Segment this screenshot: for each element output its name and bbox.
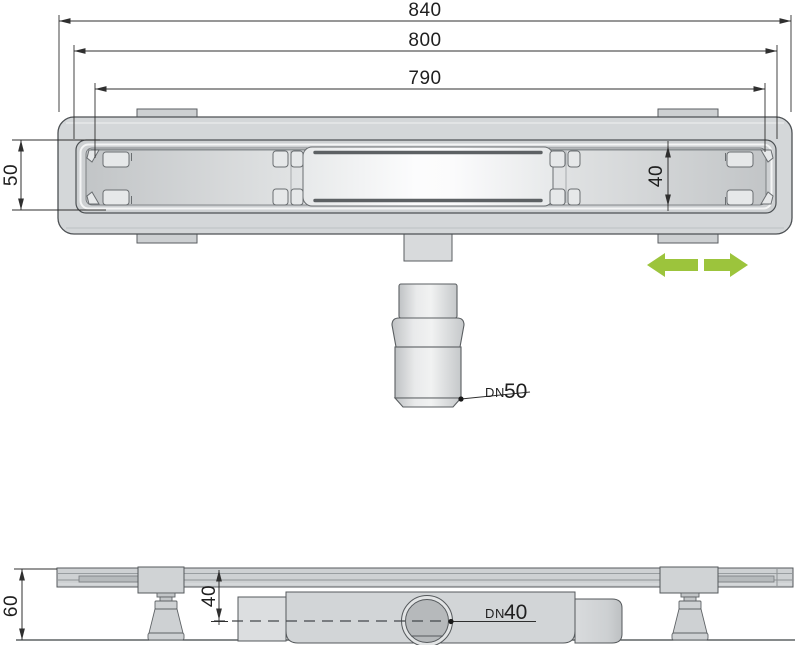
adjustable-foot-left: [148, 593, 184, 640]
dn50-size: 50: [504, 380, 527, 403]
side-view: DN 40 60 40: [1, 567, 795, 645]
trap-inlet: [238, 597, 286, 641]
dim-790-label: 790: [408, 68, 441, 89]
drain-pipe: [392, 284, 464, 407]
clip: [568, 189, 580, 205]
dn40-size: 40: [504, 601, 527, 624]
technical-drawing-page: 840 800 790 50 40: [0, 0, 800, 645]
trap-outlet-stub: [575, 599, 622, 643]
dn40-prefix: DN: [485, 606, 505, 621]
pipe-upper-tube: [399, 284, 457, 318]
outlet-circle: [402, 596, 453, 645]
clip: [291, 151, 303, 167]
top-view: 840 800 790 50 40: [1, 0, 792, 407]
clip: [550, 151, 565, 167]
pipe-chamfer: [395, 398, 461, 407]
clip: [103, 152, 129, 167]
clip: [103, 190, 129, 205]
dim-60-label: 60: [1, 595, 22, 617]
mounting-bracket: [660, 567, 718, 593]
cover-plate: [303, 147, 553, 206]
clip: [550, 189, 565, 205]
rail-slot: [79, 576, 141, 582]
leader-dot: [458, 396, 463, 401]
dn50-prefix: DN: [485, 385, 505, 400]
clip: [291, 189, 303, 205]
clip: [273, 151, 288, 167]
pipe-collar: [392, 318, 464, 347]
leader-dot: [448, 619, 453, 624]
clip: [727, 152, 753, 167]
clip: [568, 151, 580, 167]
dim-800-label: 800: [408, 30, 441, 51]
linear-drain-technical-drawing: 840 800 790 50 40: [0, 0, 800, 645]
direction-arrow-left-icon: [647, 253, 698, 277]
clip: [727, 190, 753, 205]
direction-arrow-right-icon: [704, 253, 748, 277]
dim-840: 840: [59, 0, 791, 112]
mounting-bracket: [138, 567, 184, 593]
pipe-body: [395, 347, 461, 398]
dim-40-side-label: 40: [199, 585, 220, 607]
rail-slot: [716, 576, 774, 582]
dn50-callout: DN 50: [458, 380, 530, 403]
dim-40-label: 40: [646, 165, 667, 187]
adjustable-foot-right: [672, 593, 708, 640]
dim-60: 60: [1, 569, 57, 640]
clip: [273, 189, 288, 205]
dim-50-label: 50: [1, 164, 22, 186]
dim-840-label: 840: [408, 0, 441, 21]
outlet-stub-top: [404, 233, 452, 261]
